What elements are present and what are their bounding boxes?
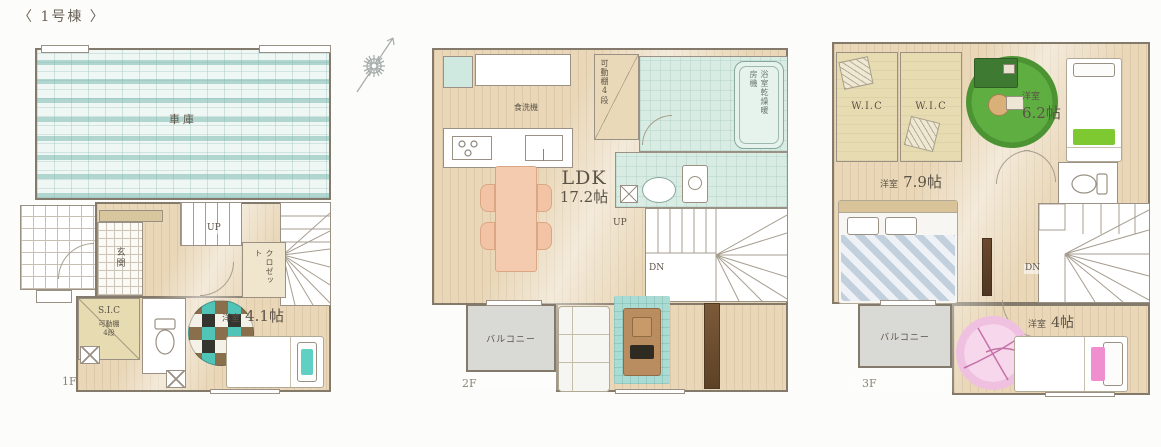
entrance-room: 玄関 — [97, 222, 143, 296]
ldk-name: LDK — [552, 168, 616, 189]
sic-shelf-levels-label: 4段 — [103, 330, 114, 338]
dining-table — [495, 166, 537, 272]
desk — [974, 58, 1018, 88]
kitchen-island — [443, 128, 573, 168]
f1-floor-label: 1F — [62, 376, 77, 388]
coffee-table — [623, 308, 661, 376]
washbasin-icon — [642, 177, 676, 203]
window-mark — [486, 300, 542, 306]
f1-closet: クロゼット — [242, 242, 286, 298]
wic-right-label: W.I.C — [915, 101, 947, 112]
pantry: 可動棚4段 — [594, 54, 639, 140]
kitchen-sink-icon — [525, 135, 563, 161]
kitchen-sink-unit — [443, 56, 473, 88]
room62-name: 洋室 — [1022, 92, 1040, 102]
room62-size: 6.2帖 — [1022, 104, 1061, 122]
room4-name: 洋室 — [1028, 320, 1046, 330]
f3-balcony: バルコニー — [858, 304, 952, 368]
f3-room4-label: 洋室 4帖 — [1028, 312, 1074, 331]
sofa — [558, 306, 610, 392]
bed-pillow — [847, 217, 879, 235]
f2-stairs-down-label: DN — [648, 264, 665, 274]
f1-stairs-winder — [280, 202, 331, 306]
washer-pan-x — [620, 185, 638, 203]
dining-chair — [537, 184, 552, 212]
stove-icon — [452, 136, 492, 160]
ldk-size: 17.2帖 — [552, 189, 616, 206]
wic-left-room: W.I.C — [836, 52, 898, 162]
window-mark — [210, 389, 280, 394]
single-bed — [226, 336, 324, 388]
north-compass-icon — [343, 28, 403, 98]
clothes-hatch — [904, 116, 940, 152]
bed-pillow — [885, 217, 917, 235]
window-mark — [615, 389, 685, 394]
bathroom: 浴室乾燥暖房機 — [639, 56, 788, 152]
bath-dryer-label: 浴室乾燥暖房機 — [748, 70, 770, 118]
dishwasher-label: 食洗機 — [514, 104, 538, 113]
bed-62 — [1066, 58, 1122, 162]
toilet-icon — [1069, 171, 1109, 197]
f2-balcony: バルコニー — [466, 304, 556, 372]
wic-right-room: W.I.C — [900, 52, 962, 162]
garage-label: 車庫 — [169, 114, 197, 126]
f3-toilet-room — [1058, 162, 1118, 204]
bed-headboard — [839, 201, 957, 213]
room41-size: 4.1帖 — [245, 307, 284, 325]
dining-chair — [480, 184, 495, 212]
f1-stairs-up-label: UP — [206, 224, 222, 234]
f2-stairs — [645, 208, 788, 302]
bed-pillow — [1103, 342, 1123, 386]
bed-blanket — [1015, 337, 1085, 391]
washing-machine-icon — [682, 165, 708, 203]
room4-size: 4帖 — [1051, 315, 1074, 331]
bed-accent — [1091, 347, 1105, 381]
f3-stairs — [1038, 203, 1150, 303]
pantry-shelf-label: 可動棚4段 — [599, 59, 610, 139]
f2-balcony-label: バルコニー — [486, 336, 536, 346]
bed-accent — [1073, 129, 1115, 145]
sic-label: S.I.C — [98, 307, 120, 317]
f1-bedroom-label: 洋室 4.1帖 — [222, 306, 284, 325]
f3-balcony-label: バルコニー — [880, 334, 930, 344]
bath-door-arc — [642, 115, 672, 145]
bed-blanket — [227, 337, 291, 387]
f3-floor-label: 3F — [862, 378, 877, 390]
clothes-hatch — [838, 56, 873, 90]
f3-room79-label: 洋室 7.9帖 — [880, 172, 942, 191]
closet-label: クロゼット — [253, 249, 275, 291]
vent-x-mark — [166, 370, 186, 388]
f2-floor-label: 2F — [462, 378, 477, 390]
entrance-label: 玄関 — [114, 247, 127, 269]
floorplan-sheet: 〈 1号棟 〉 車庫 玄関 UP — [0, 0, 1161, 447]
kitchen-back-counter — [475, 54, 571, 86]
sheet-title: 〈 1号棟 〉 — [18, 10, 106, 25]
tv-bar — [982, 238, 992, 296]
bed-accent — [301, 349, 313, 375]
bed-duvet — [841, 235, 955, 301]
garage-room: 車庫 — [35, 48, 331, 200]
porch-step — [36, 290, 72, 303]
room79-name: 洋室 — [880, 180, 898, 190]
room41-name: 洋室 — [222, 314, 240, 324]
bathtub: 浴室乾燥暖房機 — [734, 61, 784, 149]
dining-chair — [480, 222, 495, 250]
f3-room62-label: 洋室 6.2帖 — [1022, 84, 1061, 122]
sic-shelf-label: 可動棚 — [99, 321, 120, 329]
bed-4 — [1014, 336, 1128, 392]
washroom — [615, 152, 788, 208]
garage-roof-mark — [41, 45, 89, 53]
garage-roof-mark — [259, 45, 331, 53]
shoe-cabinet — [99, 210, 163, 222]
toilet-icon — [152, 317, 178, 357]
window-mark — [880, 300, 936, 306]
dining-chair — [537, 222, 552, 250]
f2-stairs-up-label: UP — [613, 219, 627, 229]
vent-x-mark — [80, 346, 100, 364]
double-bed — [838, 200, 958, 304]
wic-left-label: W.I.C — [851, 101, 883, 112]
f1-toilet-room — [142, 298, 186, 374]
ldk-label: LDK 17.2帖 — [552, 168, 616, 205]
room79-size: 7.9帖 — [903, 173, 942, 191]
bed-pillow — [1073, 63, 1115, 77]
tv-board — [704, 303, 720, 389]
f3-stairs-down-label: DN — [1024, 264, 1041, 274]
window-mark — [1045, 392, 1115, 397]
